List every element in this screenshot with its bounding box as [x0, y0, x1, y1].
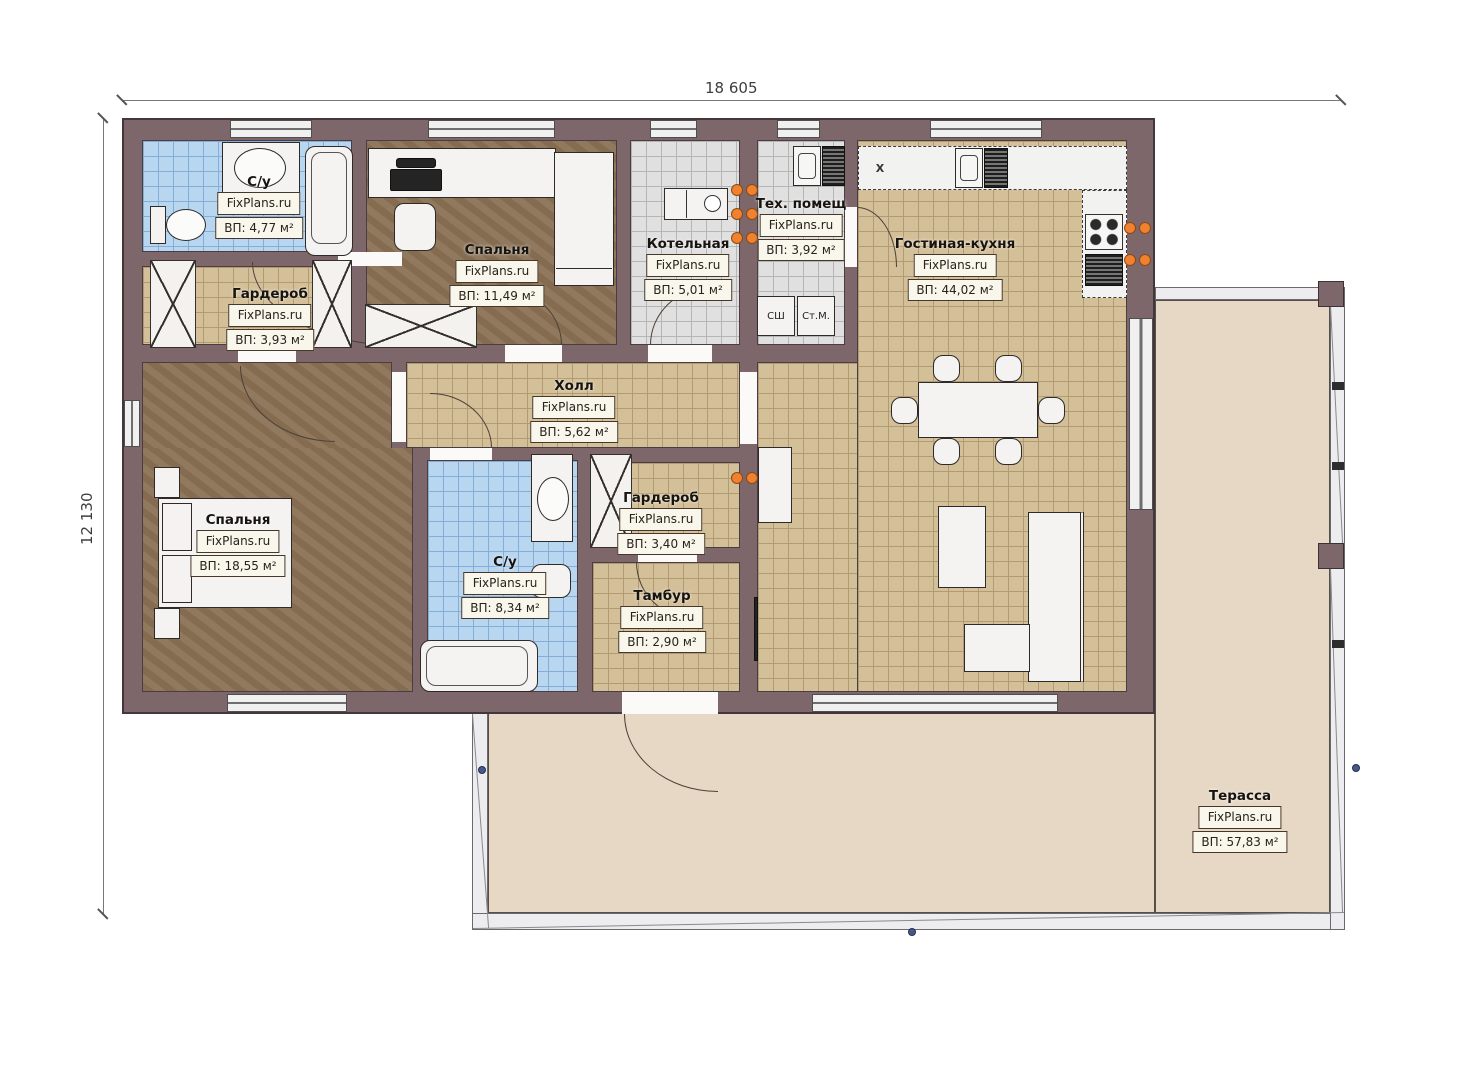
bathtub-inner: [311, 152, 347, 244]
room-label-terrace: Терасса FixPlans.ru ВП: 57,83 м²: [1192, 788, 1287, 853]
passage-opening: [740, 372, 757, 444]
railing-tick: [1332, 462, 1344, 470]
water-heater-icon: [984, 148, 1008, 188]
marker-dot: [908, 928, 916, 936]
toilet-bowl: [166, 209, 206, 241]
sofa-section: [964, 624, 1030, 672]
entrance-opening: [622, 692, 718, 714]
washing-machine-label: Ст.М.: [802, 311, 830, 322]
dimension-width-label: 18 605: [705, 79, 758, 97]
room-label-living: Гостиная-кухня FixPlans.ru ВП: 44,02 м²: [895, 236, 1016, 301]
watermark: FixPlans.ru: [621, 606, 704, 629]
room-area: ВП: 3,40 м²: [617, 533, 705, 556]
bathtub-inner: [426, 646, 528, 686]
room-label-bedroom1: Спальня FixPlans.ru ВП: 11,49 м²: [449, 242, 544, 307]
room-area: ВП: 44,02 м²: [907, 279, 1002, 302]
window: [428, 120, 555, 138]
room-area: ВП: 5,62 м²: [530, 421, 618, 444]
room-area: ВП: 2,90 м²: [618, 631, 706, 654]
door-opening: [845, 207, 857, 267]
room-label-garderob1: Гардероб FixPlans.ru ВП: 3,93 м²: [226, 286, 314, 351]
railing-tick: [1332, 382, 1344, 390]
kitchen-sink-icon: [955, 148, 983, 188]
printer-icon: [396, 158, 436, 168]
watermark: FixPlans.ru: [1199, 806, 1282, 829]
coffee-table: [938, 506, 986, 588]
window: [230, 120, 312, 138]
room-name: Терасса: [1209, 788, 1271, 804]
room-area: ВП: 3,93 м²: [226, 329, 314, 352]
window: [124, 400, 140, 447]
room-area: ВП: 11,49 м²: [449, 285, 544, 308]
dimension-line-top: [122, 100, 1341, 101]
radiator-icon: [1124, 222, 1151, 234]
room-label-hall: Холл FixPlans.ru ВП: 5,62 м²: [530, 378, 618, 443]
window: [1129, 318, 1153, 510]
room-name: Тамбур: [633, 588, 690, 604]
office-chair: [394, 203, 436, 251]
washbasin-icon: [537, 477, 569, 521]
watermark: FixPlans.ru: [533, 396, 616, 419]
window: [930, 120, 1042, 138]
dryer-closet: СШ: [757, 296, 795, 336]
fridge-slot: X: [862, 150, 898, 186]
nightstand: [154, 608, 180, 639]
room-area: ВП: 18,55 м²: [190, 555, 285, 578]
marker-dot: [1352, 764, 1360, 772]
window: [227, 694, 347, 712]
radiator-icon: [731, 232, 758, 244]
bed-blanket-line: [556, 268, 612, 269]
sofa-section: [1028, 512, 1084, 682]
room-label-garderob2: Гардероб FixPlans.ru ВП: 3,40 м²: [617, 490, 705, 555]
room-name: Тех. помещ: [756, 196, 847, 212]
room-label-su2: С/у FixPlans.ru ВП: 8,34 м²: [461, 554, 549, 619]
sink-icon: [793, 146, 821, 186]
dryer-closet-label: СШ: [767, 311, 785, 322]
passage-opening: [392, 372, 406, 442]
boiler-dial-icon: [704, 195, 721, 212]
radiator-icon: [731, 184, 758, 196]
dining-chair: [933, 438, 960, 465]
radiator-icon: [1124, 254, 1151, 266]
dimension-height-label: 12 130: [78, 493, 96, 546]
toilet-tank: [150, 206, 166, 244]
room-name: С/у: [493, 554, 517, 570]
room-label-su1: С/у FixPlans.ru ВП: 4,77 м²: [215, 174, 303, 239]
watermark: FixPlans.ru: [197, 530, 280, 553]
room-name: Гостиная-кухня: [895, 236, 1016, 252]
window: [777, 120, 820, 138]
watermark: FixPlans.ru: [218, 192, 301, 215]
room-name: Холл: [554, 378, 593, 394]
pillow: [162, 503, 192, 551]
dining-chair: [995, 438, 1022, 465]
watermark: FixPlans.ru: [760, 214, 843, 237]
door-opening: [505, 345, 562, 362]
room-name: С/у: [247, 174, 271, 190]
floor-plan: СШ Ст.М. X С/у FixPlans.ru ВП: 4,77 м²: [0, 0, 1473, 1080]
oven-icon: [1085, 254, 1123, 286]
watermark: FixPlans.ru: [456, 260, 539, 283]
room-area: ВП: 57,83 м²: [1192, 831, 1287, 854]
terrace-mid-post: [1318, 543, 1344, 569]
washing-machine: Ст.М.: [797, 296, 835, 336]
stove-icon: [1085, 214, 1123, 250]
railing-tick: [1332, 640, 1344, 648]
pillow: [162, 555, 192, 603]
door-opening: [648, 345, 712, 362]
dining-chair: [933, 355, 960, 382]
room-area: ВП: 4,77 м²: [215, 217, 303, 240]
wardrobe-unit: [150, 260, 196, 348]
room-area: ВП: 8,34 м²: [461, 597, 549, 620]
radiator-icon: [731, 208, 758, 220]
dining-chair: [891, 397, 918, 424]
watermark: FixPlans.ru: [620, 508, 703, 531]
terrace-floor-main: [488, 713, 1155, 913]
printer-icon: [390, 169, 442, 191]
radiator-icon: [731, 472, 758, 484]
room-name: Гардероб: [623, 490, 699, 506]
dining-chair: [1038, 397, 1065, 424]
water-heater-icon: [822, 146, 845, 186]
door-opening: [430, 448, 492, 460]
dining-chair: [995, 355, 1022, 382]
boiler-divider: [686, 190, 687, 218]
watermark: FixPlans.ru: [464, 572, 547, 595]
room-label-tech: Тех. помещ FixPlans.ru ВП: 3,92 м²: [756, 196, 847, 261]
room-name: Спальня: [465, 242, 530, 258]
tv-icon: [754, 597, 758, 661]
terrace-edge-top: [1155, 287, 1330, 300]
dimension-line-left: [103, 118, 104, 915]
marker-dot: [478, 766, 486, 774]
nightstand: [154, 467, 180, 498]
dining-table: [918, 382, 1038, 438]
watermark: FixPlans.ru: [647, 254, 730, 277]
room-label-boiler: Котельная FixPlans.ru ВП: 5,01 м²: [644, 236, 732, 301]
room-label-tambur: Тамбур FixPlans.ru ВП: 2,90 м²: [618, 588, 706, 653]
living-floor-b: [757, 362, 857, 692]
wardrobe-unit: [312, 260, 352, 348]
room-name: Гардероб: [232, 286, 308, 302]
watermark: FixPlans.ru: [229, 304, 312, 327]
room-name: Котельная: [647, 236, 730, 252]
terrace-corner-post: [1318, 281, 1344, 307]
room-area: ВП: 3,92 м²: [757, 239, 845, 262]
room-label-bedroom2: Спальня FixPlans.ru ВП: 18,55 м²: [190, 512, 285, 577]
storage-unit: [365, 304, 477, 348]
fridge-label: X: [876, 162, 884, 175]
watermark: FixPlans.ru: [914, 254, 997, 277]
room-name: Спальня: [206, 512, 271, 528]
window: [650, 120, 697, 138]
bed-single: [554, 152, 614, 286]
tv-cabinet: [758, 447, 792, 523]
terrace-door-window: [812, 694, 1058, 712]
room-area: ВП: 5,01 м²: [644, 279, 732, 302]
